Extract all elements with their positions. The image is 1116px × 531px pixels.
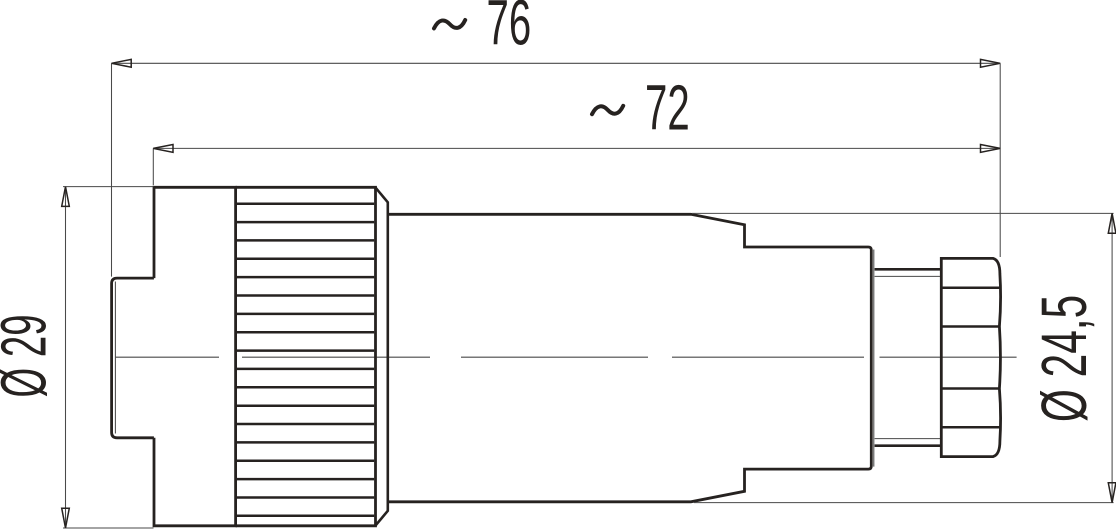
svg-text:Ø 24,5: Ø 24,5 <box>1028 295 1100 422</box>
svg-text:76: 76 <box>487 0 532 59</box>
svg-text:Ø 29: Ø 29 <box>0 314 60 397</box>
svg-text:72: 72 <box>645 73 690 144</box>
